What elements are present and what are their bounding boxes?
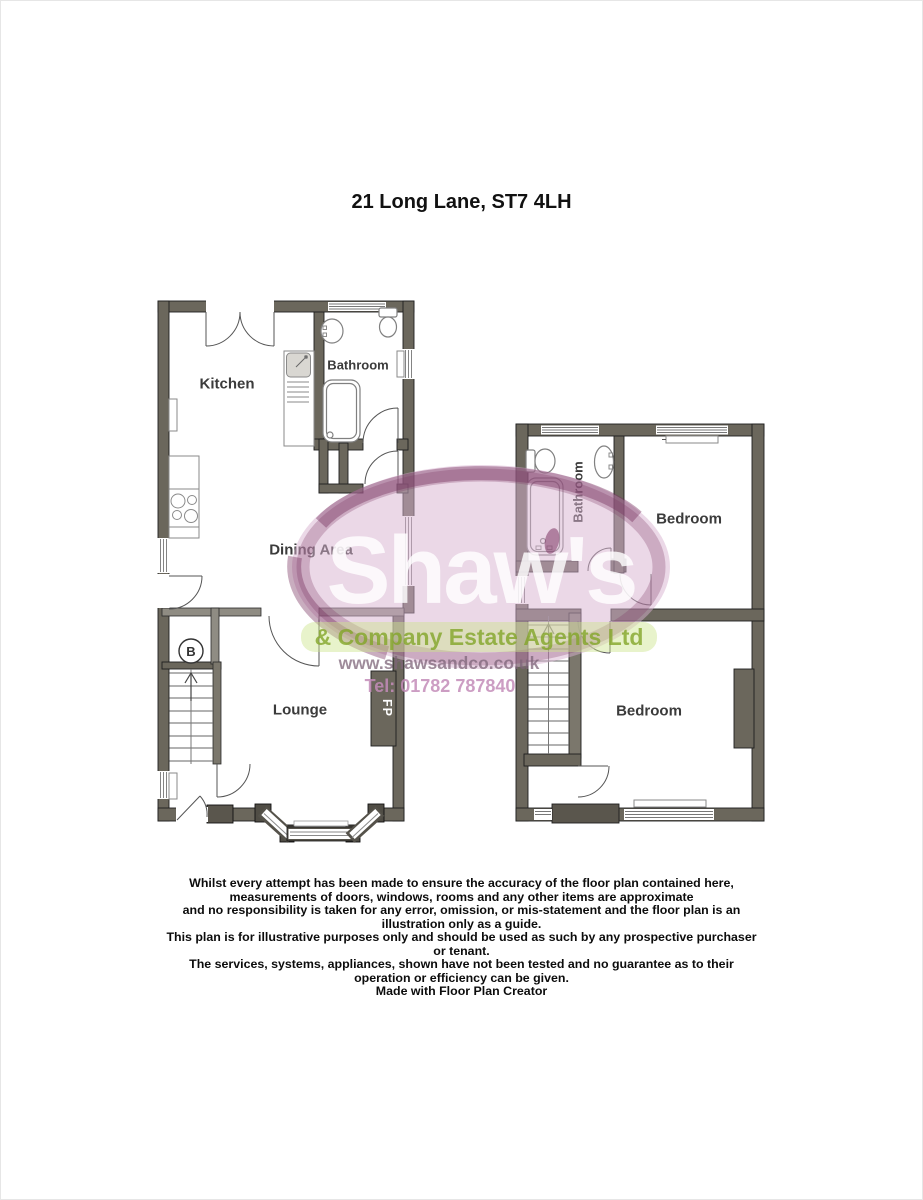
disclaimer-line: and no responsibility is taken for any e…: [1, 904, 922, 918]
room-label-first-bathroom: Bathroom: [571, 461, 586, 522]
svg-text:B: B: [186, 644, 195, 659]
ground-bathroom-sink: [321, 319, 343, 343]
fireplace-marker: FP: [380, 699, 394, 717]
first-bathroom-toilet: [526, 449, 555, 473]
disclaimer-line: This plan is for illustrative purposes o…: [1, 931, 922, 945]
room-label-lounge: Lounge: [273, 702, 327, 719]
floor-plan-page: 21 Long Lane, ST7 4LH: [0, 0, 923, 1200]
kitchen-sink-unit: [284, 351, 314, 446]
ground-bathroom-bath: [323, 380, 360, 442]
disclaimer-line: Whilst every attempt has been made to en…: [1, 877, 922, 891]
disclaimer-block: Whilst every attempt has been made to en…: [1, 877, 922, 999]
disclaimer-line: The services, systems, appliances, shown…: [1, 958, 922, 972]
first-bathroom-sink: [595, 446, 614, 478]
kitchen-hob: [169, 456, 199, 538]
room-label-bedroom-rear: Bedroom: [616, 703, 682, 720]
first-floor-stairs: [529, 616, 570, 754]
room-label-kitchen: Kitchen: [199, 376, 254, 393]
floor-plan-credit: Made with Floor Plan Creator: [1, 985, 922, 999]
room-label-dining-area: Dining Area: [269, 542, 353, 559]
disclaimer-line: illustration only as a guide.: [1, 918, 922, 932]
ground-bathroom-toilet: [379, 308, 397, 337]
disclaimer-line: measurements of doors, windows, rooms an…: [1, 891, 922, 905]
radiators-first: [634, 436, 718, 807]
first-floor-doors: [578, 548, 651, 797]
ground-floor-stairs: [170, 669, 214, 764]
first-bathroom-bath: [527, 478, 563, 555]
floor-plan-graphic: B FP: [1, 1, 923, 1200]
disclaimer-line: operation or efficiency can be given.: [1, 972, 922, 986]
boiler-marker: B: [179, 639, 203, 663]
room-label-bedroom-front: Bedroom: [656, 511, 722, 528]
bedroom-chimney: [734, 669, 754, 748]
disclaimer-line: or tenant.: [1, 945, 922, 959]
room-label-ground-bathroom: Bathroom: [327, 358, 388, 373]
